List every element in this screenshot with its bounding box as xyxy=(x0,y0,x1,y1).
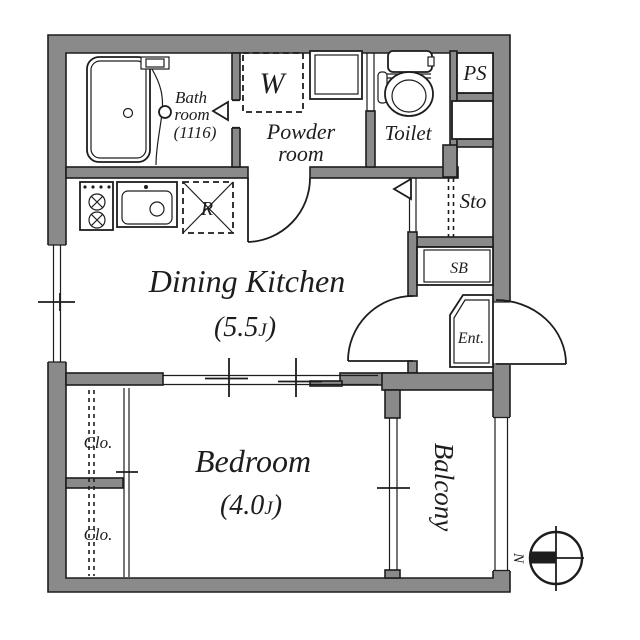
wall-bedroom-balcony-upper xyxy=(385,390,400,418)
compass-north-pointer xyxy=(530,552,556,564)
bedroom-size: (4.0J) xyxy=(220,490,282,521)
bath-faucet-inner xyxy=(146,59,164,67)
powder-room-label-2: room xyxy=(278,141,324,166)
wall-storage-left xyxy=(443,145,457,177)
balcony-label: Balcony xyxy=(429,443,459,531)
wall-top-band-left xyxy=(66,167,248,178)
entrance-label: Ent. xyxy=(457,330,484,347)
wall-balcony-top xyxy=(382,373,493,390)
kitchen-sink-basin xyxy=(122,191,172,224)
bathroom-label-3: (1116) xyxy=(174,123,217,142)
bath-door-knob-icon xyxy=(159,106,171,118)
wall-top-band-right xyxy=(310,167,458,178)
wall-storage-bottom xyxy=(417,237,493,247)
washbasin-inner xyxy=(315,55,358,94)
bedroom-label: Bedroom xyxy=(195,443,311,479)
shoe-box-label: SB xyxy=(450,260,468,277)
wall-bath-powder-upper xyxy=(232,53,240,100)
toilet-tank xyxy=(388,51,432,72)
compass-north-label: N xyxy=(510,552,526,564)
entrance-opening-cut xyxy=(492,302,511,365)
wall-bedroom-balcony-lower xyxy=(385,570,400,578)
left-window-cut xyxy=(47,245,67,362)
refrigerator-label: R xyxy=(200,198,213,220)
wall-powder-toilet xyxy=(366,111,375,167)
bathtub-inner xyxy=(91,61,146,158)
stove-knob xyxy=(91,185,94,188)
storage-label: Sto xyxy=(460,189,487,213)
washing-machine-label: W xyxy=(260,67,288,100)
stove-knob xyxy=(83,185,86,188)
sink-faucet xyxy=(144,185,148,189)
bath-door-cut xyxy=(231,100,241,128)
wall-dk-bedroom-left xyxy=(66,373,163,385)
dining-kitchen-label: Dining Kitchen xyxy=(148,263,345,299)
floor-plan-page: N Bath room (1116) W Powder room Toilet … xyxy=(0,0,640,640)
wall-bath-powder-lower xyxy=(232,128,240,167)
toilet-flush-button xyxy=(428,57,434,66)
floor-plan: N Bath room (1116) W Powder room Toilet … xyxy=(0,0,640,640)
wall-dk-right xyxy=(408,232,417,296)
wall-under-meter xyxy=(457,139,493,147)
stove-knob xyxy=(107,185,110,188)
closet-upper-label: Clo. xyxy=(84,433,113,452)
toilet-bowl-inner xyxy=(392,80,426,112)
stove-knob xyxy=(99,185,102,188)
meter-box xyxy=(452,101,493,139)
sink-drain xyxy=(150,202,164,216)
toilet-label: Toilet xyxy=(384,121,432,145)
bathroom-label-2: room xyxy=(174,105,209,124)
pipe-space-label: PS xyxy=(462,61,487,85)
bathtub-drain xyxy=(124,109,133,118)
closet-lower-label: Clo. xyxy=(84,525,113,544)
dining-kitchen-size: (5.5J) xyxy=(214,312,276,343)
